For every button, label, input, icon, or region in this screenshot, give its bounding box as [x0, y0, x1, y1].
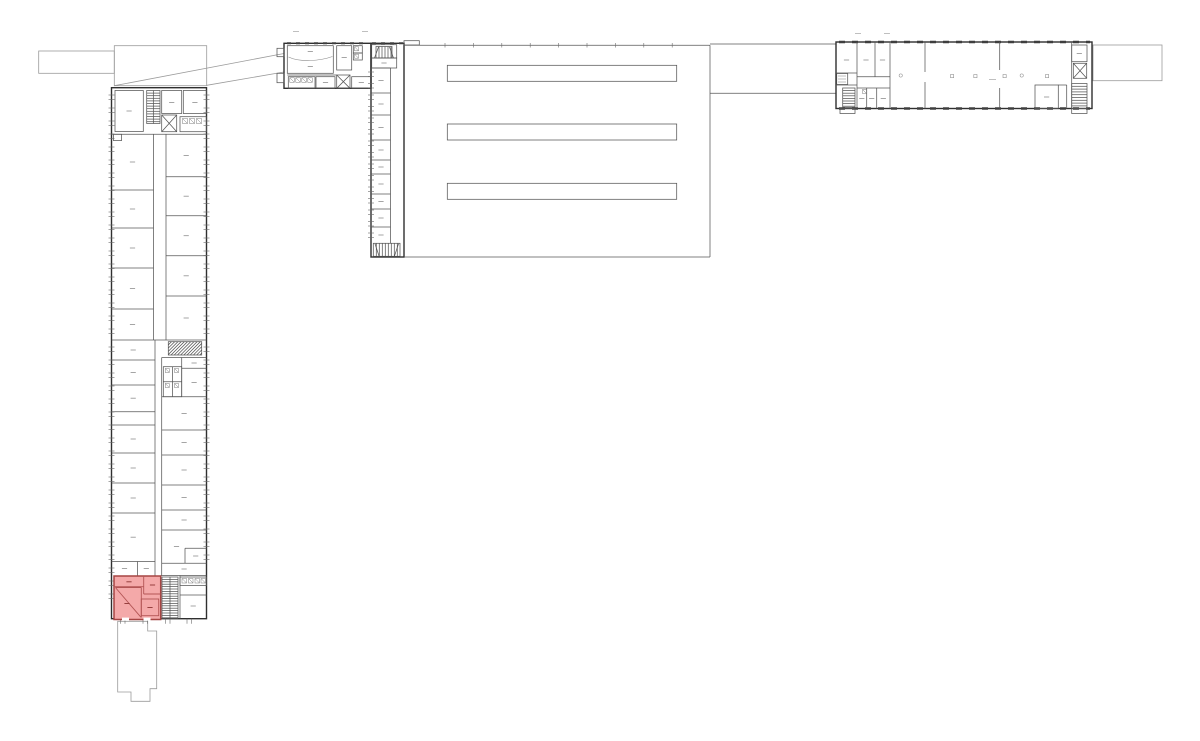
highlighted-rooms [114, 576, 161, 621]
floorplan-canvas [0, 0, 1200, 741]
floorplan-svg [0, 0, 1200, 741]
